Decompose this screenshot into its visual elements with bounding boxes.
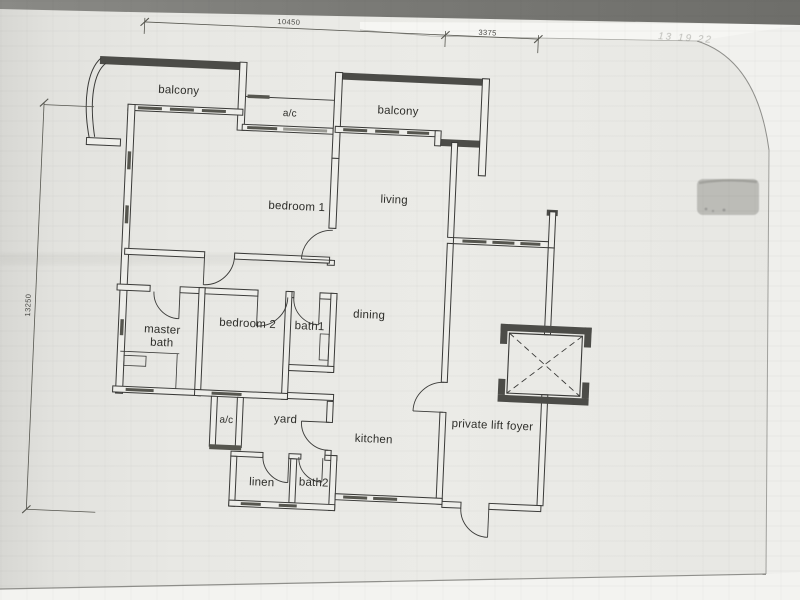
room-label-balcony-2: balcony xyxy=(377,105,419,118)
dimension-label-left-height: 13250 xyxy=(24,294,32,317)
lift-shaft xyxy=(497,324,591,406)
floor-plan: balcony a/c balcony bedroom 1 living mas… xyxy=(0,0,800,600)
door-bedroom1-entry xyxy=(302,229,333,260)
door-master-bath xyxy=(153,292,180,319)
room-label-ac-2: a/c xyxy=(219,416,233,427)
door-dining-foyer xyxy=(413,381,444,412)
room-label-ac-1: a/c xyxy=(283,109,297,120)
dimension-label-top-width: 10450 xyxy=(277,18,300,26)
room-label-yard: yard xyxy=(274,414,298,426)
room-label-bedroom-1: bedroom 1 xyxy=(268,201,325,215)
room-label-bath-1: bath1 xyxy=(294,321,324,334)
room-label-linen: linen xyxy=(249,477,275,490)
photographed-floor-plan-page: 13 19 22 xyxy=(0,0,800,600)
door-bedroom1-hall xyxy=(203,255,234,286)
solid-walls xyxy=(94,56,564,216)
door-yard-kitchen xyxy=(300,421,329,450)
door-foyer-exit xyxy=(460,508,489,537)
balcony-curved-wall xyxy=(85,57,106,140)
room-label-master-bath: master bath xyxy=(136,323,187,351)
room-label-kitchen: kitchen xyxy=(355,434,393,447)
walls xyxy=(71,56,562,520)
dimension-label-top-right-width: 3375 xyxy=(478,29,497,37)
room-label-balcony-1: balcony xyxy=(158,85,200,98)
room-label-dining: dining xyxy=(353,310,385,323)
room-label-living: living xyxy=(380,195,408,208)
floor-plan-drawing xyxy=(0,0,800,600)
room-label-bath-2: bath2 xyxy=(299,477,329,490)
dimension-lines xyxy=(22,14,542,535)
lift-x-mark xyxy=(507,333,583,396)
lift-cab xyxy=(507,333,583,396)
room-label-bedroom-2: bedroom 2 xyxy=(219,318,276,332)
